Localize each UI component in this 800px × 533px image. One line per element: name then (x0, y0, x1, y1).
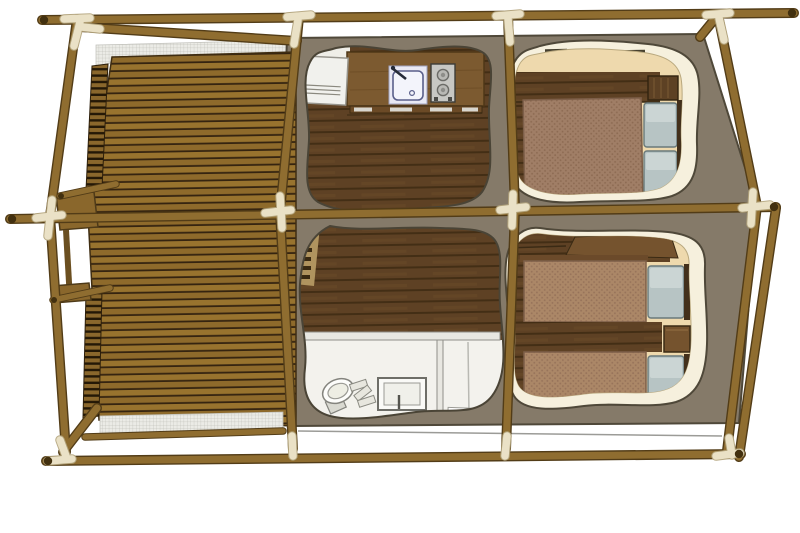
double-bed (523, 98, 643, 199)
joint-foot-b (505, 436, 507, 456)
single-bed-blanket (524, 261, 646, 322)
bathroom-wall (298, 332, 500, 340)
room-living-bathroom (294, 220, 506, 424)
stove-knob (448, 97, 452, 101)
room-bedroom-twin (505, 228, 707, 412)
stove-knob (434, 97, 438, 101)
deck-lower (88, 210, 296, 426)
double-bed-blanket (523, 98, 643, 199)
bathroom-partition (437, 340, 443, 416)
kitchen-sink (389, 66, 427, 104)
headboard-cabinet (648, 76, 678, 100)
sink-basin (393, 71, 423, 100)
joint-foot-a (292, 436, 293, 456)
stove (431, 64, 455, 102)
joint-top-left (64, 18, 90, 19)
living-floor (294, 220, 506, 345)
room-bedroom-double (509, 41, 699, 203)
glass-partition (468, 342, 469, 414)
joint-eave-right (742, 205, 770, 208)
floor-plan-rendering (0, 0, 800, 533)
floor-between-beds (514, 322, 662, 352)
deck-upper (88, 52, 296, 214)
joint-beam-sleeve (82, 27, 100, 29)
shower-tray (378, 378, 426, 410)
faucet-base (391, 66, 395, 70)
deck-railing-lower (83, 290, 102, 418)
floor-plan-canvas (0, 0, 800, 533)
single-bed-1 (524, 261, 690, 322)
room-kitchen (296, 40, 502, 220)
